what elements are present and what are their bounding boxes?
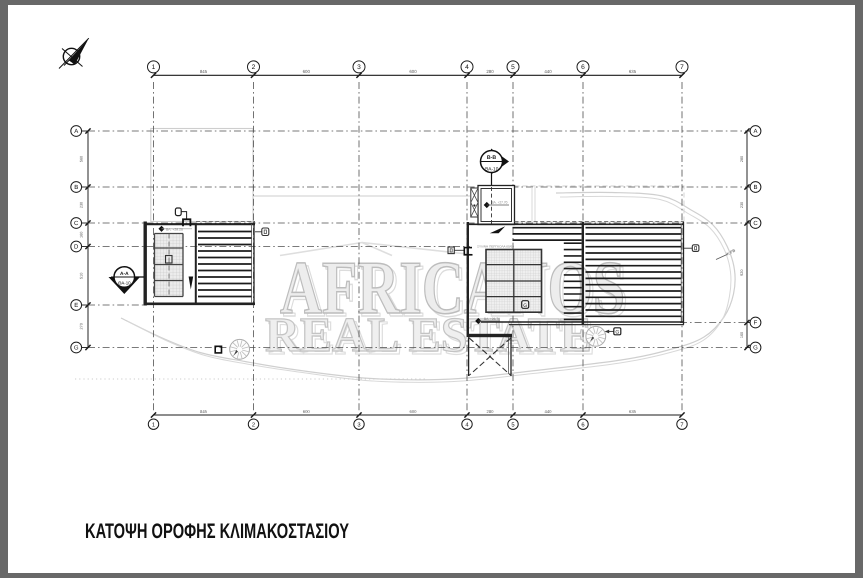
svg-text:160: 160 (80, 232, 84, 238)
svg-text:635: 635 (629, 409, 637, 414)
svg-text:2: 2 (252, 421, 255, 428)
svg-text:510: 510 (80, 273, 84, 279)
svg-text:3: 3 (357, 64, 361, 71)
svg-text:600: 600 (303, 69, 311, 74)
svg-text:ΘΑ-10: ΘΑ-10 (118, 281, 131, 286)
svg-text:A: A (74, 128, 78, 135)
svg-text:1: 1 (152, 64, 156, 71)
svg-text:G: G (753, 345, 758, 352)
svg-text:ΘΑ-10: ΘΑ-10 (485, 166, 499, 172)
svg-text:4: 4 (465, 64, 469, 71)
svg-text:D: D (74, 244, 79, 251)
svg-text:230: 230 (740, 202, 744, 208)
svg-text:600: 600 (410, 409, 418, 414)
svg-text:C: C (74, 220, 79, 227)
svg-text:A: A (753, 128, 757, 135)
svg-text:ΞΥΛΙΝΗ ΠΕΡΓΚΟΛΑ 60/60: ΞΥΛΙΝΗ ΠΕΡΓΚΟΛΑ 60/60 (477, 244, 514, 248)
svg-text:3: 3 (357, 421, 360, 428)
svg-text:6: 6 (581, 64, 585, 71)
svg-text:ΚΑΤΟΨΗ ΟΡΟΦΗΣ ΚΛΙΜΑΚΟΣΤΑΣΙΟΥ: ΚΑΤΟΨΗ ΟΡΟΦΗΣ ΚΛΙΜΑΚΟΣΤΑΣΙΟΥ (85, 520, 349, 543)
svg-text:920: 920 (740, 270, 744, 276)
svg-text:600: 600 (409, 69, 417, 74)
svg-text:280: 280 (487, 409, 495, 414)
svg-text:230: 230 (80, 202, 84, 208)
svg-text:ΒΛ. +26.70: ΒΛ. +26.70 (484, 317, 500, 321)
svg-text:1: 1 (152, 422, 155, 428)
svg-text:7: 7 (680, 64, 684, 71)
svg-text:845: 845 (200, 69, 208, 74)
svg-text:160: 160 (740, 332, 744, 338)
svg-text:845: 845 (200, 409, 208, 414)
svg-text:G: G (523, 303, 527, 309)
svg-text:B: B (753, 184, 757, 191)
svg-text:6: 6 (581, 421, 584, 428)
svg-text:270: 270 (80, 323, 84, 329)
svg-text:5: 5 (511, 422, 514, 428)
svg-text:560: 560 (80, 156, 84, 162)
svg-text:440: 440 (545, 409, 553, 414)
svg-text:635: 635 (629, 69, 637, 74)
svg-text:A-A: A-A (120, 271, 129, 277)
svg-text:B: B (74, 184, 78, 191)
svg-text:REAL ESTATE: REAL ESTATE (265, 307, 592, 362)
svg-text:F: F (754, 320, 758, 327)
svg-text:5: 5 (511, 64, 515, 71)
svg-text:B-B: B-B (487, 155, 496, 161)
svg-text:600: 600 (303, 409, 311, 414)
svg-text:440: 440 (544, 69, 552, 74)
svg-text:280: 280 (486, 69, 494, 74)
svg-text:ΒΛ. +28.20: ΒΛ. +28.20 (166, 228, 183, 232)
svg-text:2: 2 (252, 64, 256, 71)
svg-text:G: G (74, 345, 79, 352)
svg-text:7: 7 (680, 422, 683, 428)
svg-text:C: C (753, 220, 758, 227)
svg-text:E: E (74, 302, 78, 309)
svg-text:ΒΛ. +27.70: ΒΛ. +27.70 (492, 201, 508, 205)
svg-text:G: G (615, 330, 619, 336)
svg-text:280: 280 (740, 156, 744, 162)
